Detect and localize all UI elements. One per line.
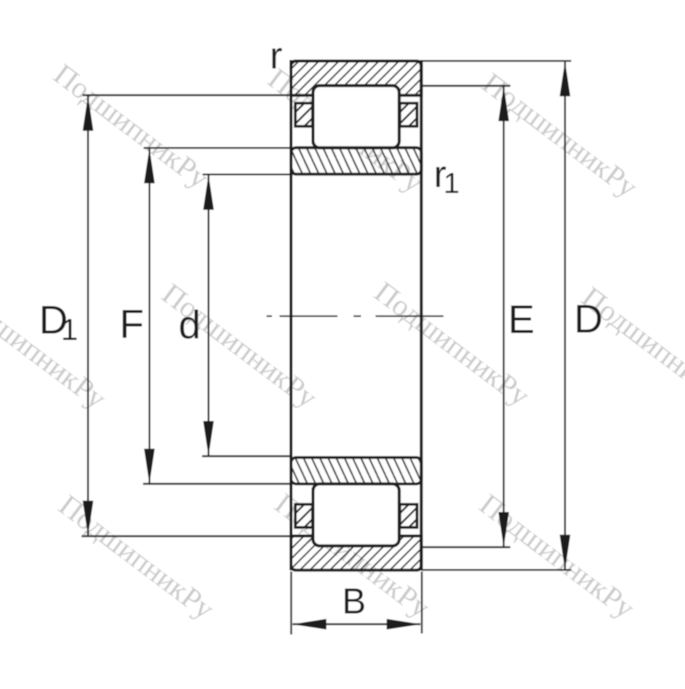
svg-text:r: r <box>270 36 283 78</box>
svg-text:B: B <box>342 581 366 622</box>
svg-text:D: D <box>574 298 603 342</box>
svg-text:F: F <box>120 303 144 347</box>
svg-text:d: d <box>179 304 201 348</box>
svg-text:E: E <box>508 298 535 342</box>
